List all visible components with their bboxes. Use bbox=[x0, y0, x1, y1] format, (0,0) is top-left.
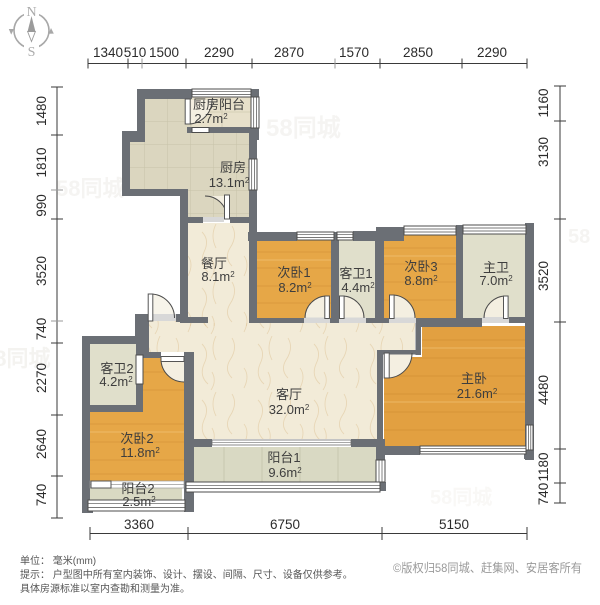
svg-text:4.2m2: 4.2m2 bbox=[99, 374, 133, 389]
svg-text:客厅: 客厅 bbox=[276, 387, 302, 402]
svg-text:1160: 1160 bbox=[536, 88, 551, 117]
svg-text:58同城: 58同城 bbox=[430, 485, 492, 509]
svg-text:4.4m2: 4.4m2 bbox=[341, 280, 375, 295]
svg-text:次卧1: 次卧1 bbox=[277, 265, 310, 280]
svg-text:1570: 1570 bbox=[339, 45, 369, 60]
svg-text:740: 740 bbox=[34, 318, 49, 341]
svg-text:2290: 2290 bbox=[204, 45, 234, 60]
svg-text:5150: 5150 bbox=[439, 517, 469, 532]
svg-text:3520: 3520 bbox=[34, 256, 49, 286]
svg-text:9.6m2: 9.6m2 bbox=[268, 465, 302, 480]
svg-text:8.2m2: 8.2m2 bbox=[278, 280, 312, 295]
svg-text:3130: 3130 bbox=[536, 137, 551, 167]
svg-text:3360: 3360 bbox=[124, 517, 154, 532]
svg-text:1810: 1810 bbox=[34, 147, 49, 177]
svg-text:©版权归58同城、赶集网、安居客所有: ©版权归58同城、赶集网、安居客所有 bbox=[393, 560, 582, 575]
svg-text:2270: 2270 bbox=[34, 363, 49, 393]
svg-text:提示： 户型图中所有室内装饰、设计、摆设、间隔、尺寸、设备: 提示： 户型图中所有室内装饰、设计、摆设、间隔、尺寸、设备仅供参考。 bbox=[20, 568, 353, 581]
svg-text:58同城: 58同城 bbox=[56, 176, 124, 201]
svg-text:次卧2: 次卧2 bbox=[120, 431, 153, 446]
svg-text:4480: 4480 bbox=[536, 375, 551, 405]
svg-text:2.7m2: 2.7m2 bbox=[194, 111, 228, 126]
svg-text:2870: 2870 bbox=[274, 45, 304, 60]
svg-text:58: 58 bbox=[568, 226, 590, 248]
svg-text:1500: 1500 bbox=[149, 45, 179, 60]
svg-text:次卧3: 次卧3 bbox=[404, 259, 437, 274]
svg-text:740: 740 bbox=[536, 483, 551, 506]
svg-text:1480: 1480 bbox=[34, 96, 49, 126]
svg-text:客卫1: 客卫1 bbox=[339, 266, 372, 281]
svg-text:8.8m2: 8.8m2 bbox=[404, 273, 438, 288]
svg-text:阳台1: 阳台1 bbox=[267, 450, 300, 465]
svg-text:8.1m2: 8.1m2 bbox=[201, 269, 235, 284]
svg-text:6750: 6750 bbox=[270, 517, 300, 532]
svg-text:11.8m2: 11.8m2 bbox=[120, 445, 160, 460]
svg-text:2.5m2: 2.5m2 bbox=[122, 494, 156, 509]
svg-text:510: 510 bbox=[124, 45, 147, 60]
svg-text:1180: 1180 bbox=[536, 452, 551, 481]
svg-text:3520: 3520 bbox=[536, 261, 551, 291]
svg-text:单位： 毫米(mm): 单位： 毫米(mm) bbox=[20, 554, 96, 567]
svg-text:具体房源标准以室内查勘和测量为准。: 具体房源标准以室内查勘和测量为准。 bbox=[20, 582, 190, 595]
svg-text:S: S bbox=[28, 45, 36, 60]
svg-text:厨房: 厨房 bbox=[220, 160, 246, 175]
svg-text:2850: 2850 bbox=[403, 45, 433, 60]
svg-text:主卧: 主卧 bbox=[461, 371, 487, 386]
svg-text:58同城: 58同城 bbox=[266, 114, 341, 142]
svg-text:1340: 1340 bbox=[93, 45, 123, 60]
svg-text:21.6m2: 21.6m2 bbox=[457, 386, 498, 401]
svg-text:990: 990 bbox=[34, 194, 49, 217]
svg-text:7.0m2: 7.0m2 bbox=[479, 273, 513, 288]
svg-text:32.0m2: 32.0m2 bbox=[269, 402, 310, 417]
svg-text:2290: 2290 bbox=[477, 45, 507, 60]
svg-text:740: 740 bbox=[34, 484, 49, 507]
svg-text:厨房阳台: 厨房阳台 bbox=[193, 97, 245, 112]
svg-text:2640: 2640 bbox=[34, 429, 49, 459]
svg-text:13.1m2: 13.1m2 bbox=[209, 175, 250, 190]
